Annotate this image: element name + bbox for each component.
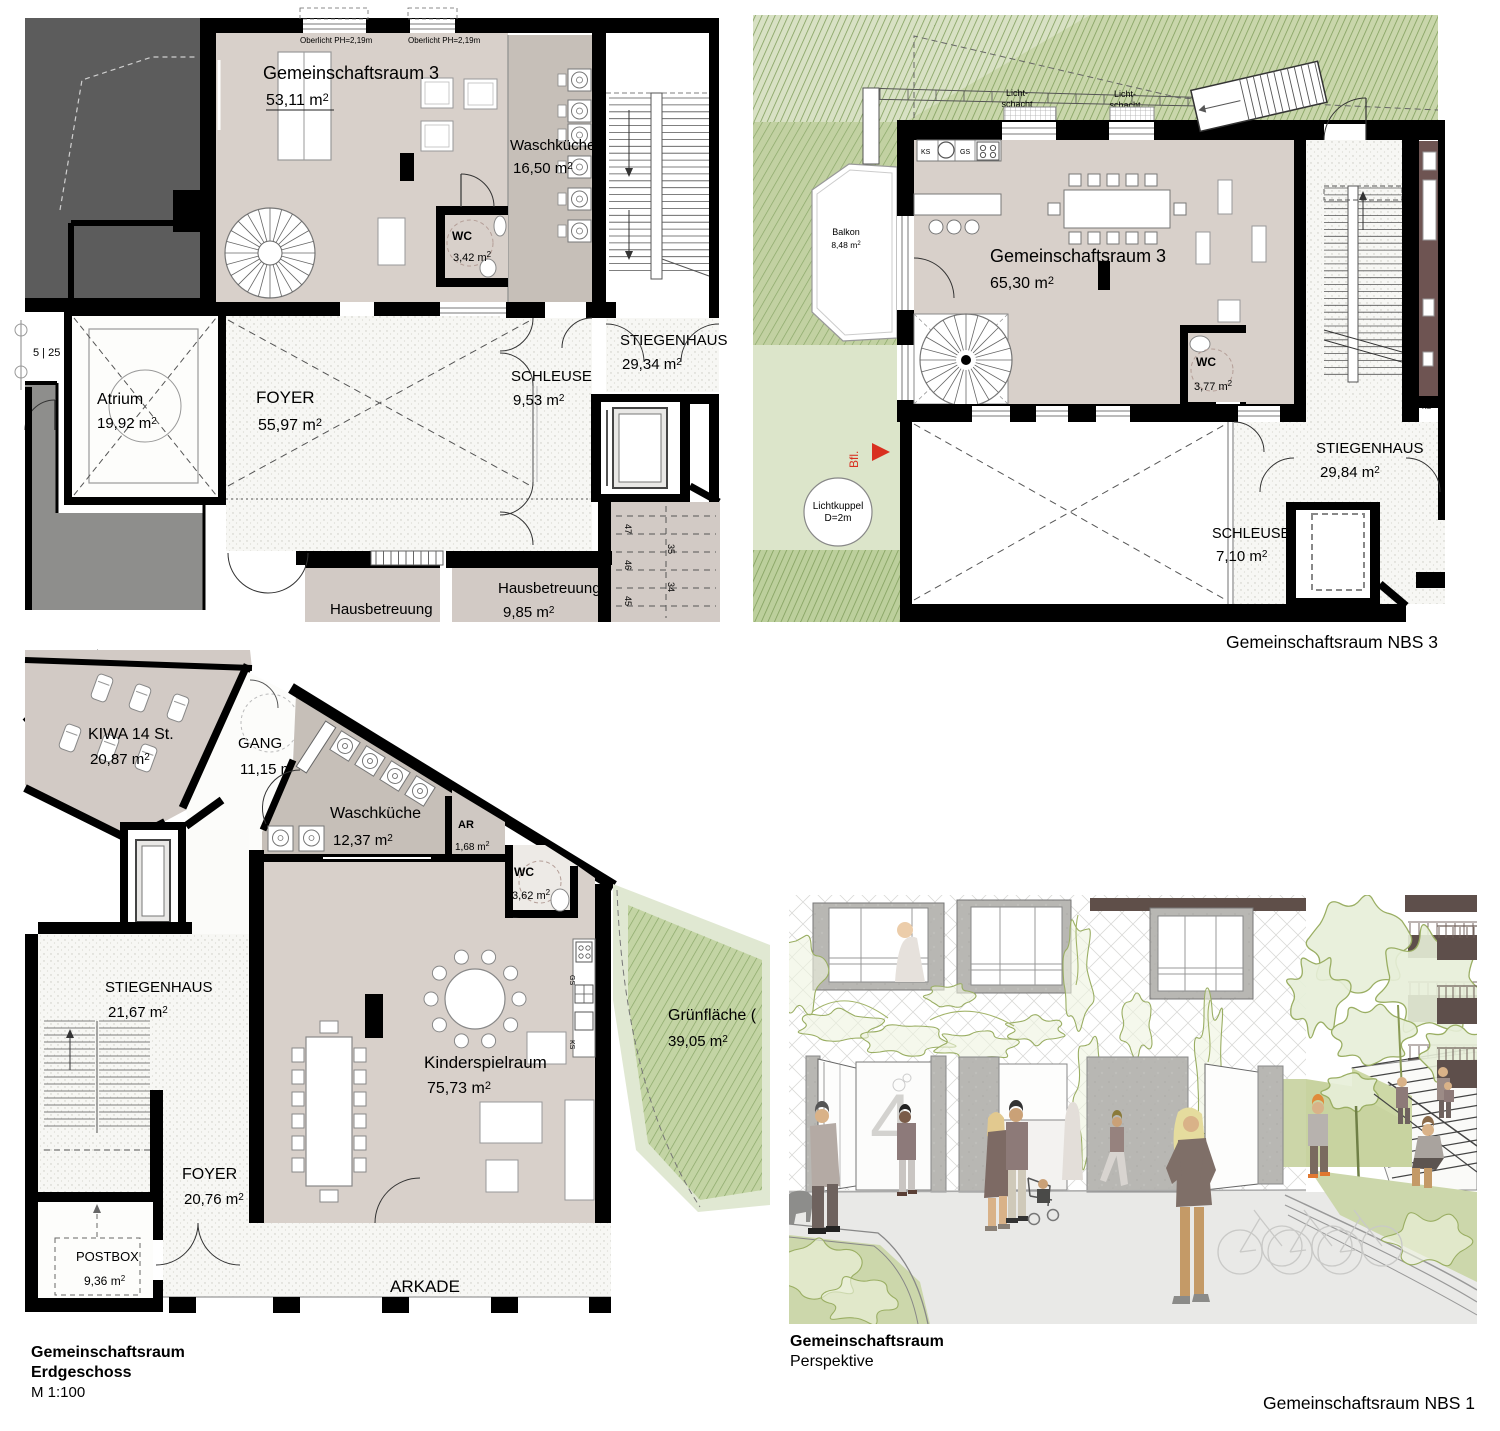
svg-text:35: 35 <box>666 544 676 554</box>
svg-text:Hausbetreuung: Hausbetreuung <box>498 580 601 597</box>
svg-text:Licht-: Licht- <box>1006 88 1028 98</box>
svg-text:1,68 m2: 1,68 m2 <box>455 841 490 853</box>
svg-text:55,97 m2: 55,97 m2 <box>258 417 322 434</box>
svg-text:45: 45 <box>623 596 633 606</box>
svg-text:65,30 m2: 65,30 m2 <box>990 275 1054 292</box>
svg-text:Hausbetreuung: Hausbetreuung <box>330 601 433 618</box>
svg-text:Atrium: Atrium <box>97 391 143 408</box>
svg-text:Grünfläche (: Grünfläche ( <box>668 1007 757 1024</box>
svg-text:POSTBOX: POSTBOX <box>76 1249 139 1264</box>
svg-text:WC: WC <box>452 229 472 243</box>
svg-text:KS: KS <box>1422 404 1432 411</box>
svg-text:Gemeinschaftsraum NBS 1: Gemeinschaftsraum NBS 1 <box>1263 1393 1475 1413</box>
svg-text:Gemeinschaftsraum: Gemeinschaftsraum <box>790 1333 944 1350</box>
svg-text:D=2m: D=2m <box>825 513 852 524</box>
svg-text:19,92 m2: 19,92 m2 <box>97 415 157 432</box>
svg-text:GS: GS <box>568 975 575 985</box>
svg-text:SCHLEUSE: SCHLEUSE <box>511 368 592 385</box>
svg-text:39,05 m2: 39,05 m2 <box>668 1033 728 1050</box>
svg-text:Lichtkuppel: Lichtkuppel <box>813 501 864 512</box>
svg-text:Licht-: Licht- <box>1114 89 1136 99</box>
svg-text:75,73 m2: 75,73 m2 <box>427 1080 491 1097</box>
svg-text:STIEGENHAUS: STIEGENHAUS <box>620 332 728 349</box>
svg-text:WC: WC <box>1196 355 1216 369</box>
svg-text:Waschküche: Waschküche <box>330 805 421 822</box>
svg-text:GANG: GANG <box>238 735 282 752</box>
svg-text:29,34 m2: 29,34 m2 <box>622 356 682 373</box>
svg-text:20,87 m2: 20,87 m2 <box>90 751 150 768</box>
svg-text:SCHLEUSE: SCHLEUSE <box>1212 526 1290 542</box>
svg-text:46: 46 <box>623 560 633 570</box>
svg-text:Kinderspielraum: Kinderspielraum <box>424 1053 547 1072</box>
svg-text:STIEGENHAUS: STIEGENHAUS <box>1316 440 1424 457</box>
svg-text:12,37 m2: 12,37 m2 <box>333 832 393 849</box>
svg-text:Waschküche: Waschküche <box>510 137 595 154</box>
svg-text:29,84 m2: 29,84 m2 <box>1320 464 1380 481</box>
svg-text:KS: KS <box>568 1040 575 1050</box>
svg-text:Gemeinschaftsraum 3: Gemeinschaftsraum 3 <box>990 246 1166 266</box>
svg-text:Oberlicht PH=2,19m: Oberlicht PH=2,19m <box>300 36 373 45</box>
svg-text:Balkon: Balkon <box>832 227 860 237</box>
svg-text:GS: GS <box>960 149 970 156</box>
svg-text:KIWA 14 St.: KIWA 14 St. <box>88 726 174 743</box>
svg-text:20,76 m2: 20,76 m2 <box>184 1191 244 1208</box>
svg-text:KS: KS <box>921 149 931 156</box>
svg-text:Erdgeschoss: Erdgeschoss <box>31 1364 132 1381</box>
svg-text:Oberlicht PH=2,19m: Oberlicht PH=2,19m <box>408 36 481 45</box>
svg-text:FOYER: FOYER <box>256 388 315 407</box>
svg-text:9,36 m2: 9,36 m2 <box>84 1274 126 1288</box>
svg-text:53,11 m2: 53,11 m2 <box>266 92 329 109</box>
svg-text:STIEGENHAUS: STIEGENHAUS <box>105 979 213 996</box>
svg-text:21,67 m2: 21,67 m2 <box>108 1004 168 1021</box>
svg-text:Gemeinschaftsraum 3: Gemeinschaftsraum 3 <box>263 63 439 83</box>
svg-text:16,50 m2: 16,50 m2 <box>513 160 573 177</box>
svg-text:Bfl.: Bfl. <box>847 451 861 468</box>
svg-text:9,85 m2: 9,85 m2 <box>503 604 555 621</box>
svg-text:47: 47 <box>623 524 633 534</box>
svg-text:Gemeinschaftsraum: Gemeinschaftsraum <box>31 1344 185 1361</box>
svg-text:3,62 m2: 3,62 m2 <box>512 888 551 902</box>
svg-text:WC: WC <box>514 865 534 879</box>
svg-text:Perspektive: Perspektive <box>790 1353 874 1370</box>
svg-text:3,77 m2: 3,77 m2 <box>1194 379 1233 393</box>
svg-text:FOYER: FOYER <box>182 1166 237 1183</box>
svg-text:9,53 m2: 9,53 m2 <box>513 392 565 409</box>
svg-text:34: 34 <box>666 582 676 592</box>
svg-text:ARKADE: ARKADE <box>390 1277 460 1296</box>
svg-text:7,10 m2: 7,10 m2 <box>1216 548 1268 565</box>
svg-text:8,48 m2: 8,48 m2 <box>831 240 861 250</box>
svg-text:AR: AR <box>458 819 474 831</box>
svg-text:3,42 m2: 3,42 m2 <box>453 250 492 264</box>
svg-text:Gemeinschaftsraum NBS 3: Gemeinschaftsraum NBS 3 <box>1226 632 1438 652</box>
svg-text:M 1:100: M 1:100 <box>31 1384 85 1401</box>
svg-text:5 | 25: 5 | 25 <box>33 347 60 359</box>
